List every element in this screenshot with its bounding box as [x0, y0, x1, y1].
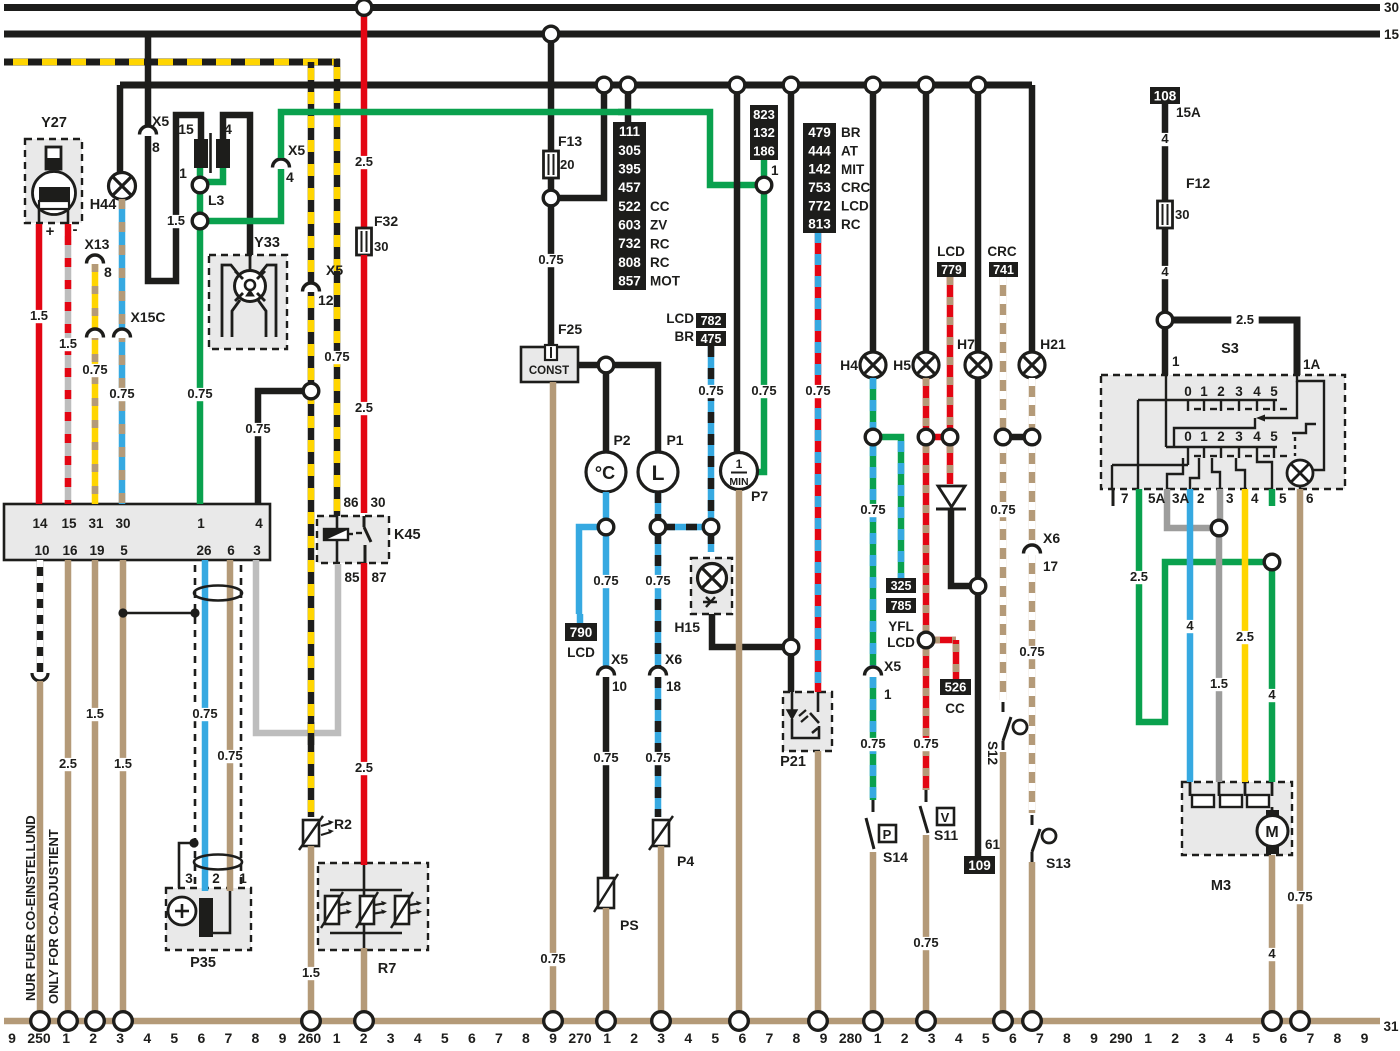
svg-text:X6: X6 [665, 651, 682, 667]
svg-text:9: 9 [820, 1030, 828, 1046]
svg-text:P21: P21 [780, 754, 806, 770]
svg-text:4: 4 [1251, 491, 1259, 506]
svg-text:BR: BR [841, 125, 861, 140]
svg-text:+: + [46, 223, 55, 240]
svg-text:1: 1 [736, 457, 743, 471]
svg-text:0.75: 0.75 [538, 252, 563, 267]
svg-text:85: 85 [344, 570, 360, 585]
svg-text:3: 3 [1235, 429, 1243, 444]
svg-text:X6: X6 [1043, 530, 1060, 546]
svg-text:0.75: 0.75 [1019, 644, 1044, 659]
svg-text:8: 8 [152, 139, 160, 155]
svg-text:0.75: 0.75 [860, 736, 885, 751]
svg-text:4: 4 [955, 1030, 963, 1046]
svg-text:2.5: 2.5 [1236, 629, 1254, 644]
svg-text:0.75: 0.75 [324, 349, 349, 364]
svg-text:R2: R2 [334, 816, 352, 832]
svg-text:4: 4 [1253, 384, 1261, 399]
svg-text:L3: L3 [208, 192, 225, 208]
svg-text:4: 4 [1161, 131, 1169, 146]
svg-text:813: 813 [808, 217, 831, 232]
svg-text:1: 1 [1200, 384, 1208, 399]
svg-text:5: 5 [982, 1030, 990, 1046]
svg-text:H21: H21 [1040, 336, 1066, 352]
svg-text:2: 2 [89, 1030, 97, 1046]
svg-text:MIT: MIT [841, 162, 865, 177]
svg-text:R7: R7 [378, 961, 397, 977]
svg-text:0: 0 [1184, 429, 1192, 444]
svg-text:RC: RC [650, 236, 670, 251]
svg-text:30: 30 [115, 516, 130, 531]
svg-text:F32: F32 [374, 213, 398, 229]
svg-text:808: 808 [618, 255, 641, 270]
svg-text:1: 1 [333, 1030, 341, 1046]
svg-text:395: 395 [618, 162, 641, 177]
svg-text:1: 1 [1172, 354, 1180, 369]
svg-text:7: 7 [766, 1030, 774, 1046]
svg-text:3A: 3A [1172, 491, 1190, 506]
svg-text:4: 4 [1225, 1030, 1233, 1046]
svg-text:9: 9 [8, 1030, 16, 1046]
svg-text:0.75: 0.75 [192, 706, 217, 721]
svg-text:5: 5 [1252, 1030, 1260, 1046]
svg-text:X5: X5 [326, 262, 343, 278]
svg-text:790: 790 [570, 625, 593, 640]
svg-text:4: 4 [1268, 687, 1276, 702]
svg-text:X13: X13 [85, 236, 110, 252]
svg-text:1: 1 [884, 687, 892, 702]
svg-text:RC: RC [841, 217, 861, 232]
svg-text:2.5: 2.5 [1236, 312, 1254, 327]
svg-text:15A: 15A [1176, 105, 1201, 120]
svg-text:31: 31 [88, 516, 104, 531]
svg-text:AT: AT [841, 144, 859, 159]
svg-text:0.75: 0.75 [593, 750, 618, 765]
svg-text:0.75: 0.75 [217, 748, 242, 763]
svg-text:Y33: Y33 [254, 235, 280, 251]
svg-text:6: 6 [227, 543, 235, 558]
svg-text:S13: S13 [1046, 855, 1071, 871]
svg-text:3: 3 [185, 871, 193, 886]
svg-text:0.75: 0.75 [751, 383, 776, 398]
svg-text:LCD: LCD [887, 635, 915, 650]
svg-text:15: 15 [61, 516, 77, 531]
svg-text:6: 6 [1279, 1030, 1287, 1046]
svg-text:0.75: 0.75 [645, 573, 670, 588]
svg-text:6: 6 [468, 1030, 476, 1046]
svg-text:26: 26 [196, 543, 212, 558]
svg-text:111: 111 [619, 124, 641, 139]
svg-text:603: 603 [618, 218, 641, 233]
svg-text:0.75: 0.75 [913, 736, 938, 751]
svg-text:CRC: CRC [987, 244, 1016, 259]
svg-text:CONST: CONST [529, 365, 569, 377]
svg-text:P1: P1 [666, 432, 683, 448]
svg-text:15: 15 [178, 121, 194, 137]
svg-text:M3: M3 [1211, 878, 1231, 894]
svg-text:19: 19 [89, 543, 104, 558]
svg-text:2.5: 2.5 [355, 760, 373, 775]
svg-text:YFL: YFL [888, 619, 914, 634]
svg-text:0.75: 0.75 [187, 386, 212, 401]
svg-text:1: 1 [874, 1030, 882, 1046]
svg-text:270: 270 [568, 1030, 592, 1046]
svg-text:5: 5 [1270, 384, 1278, 399]
svg-text:-: - [73, 221, 78, 238]
svg-text:2.5: 2.5 [355, 154, 373, 169]
svg-text:2: 2 [1197, 491, 1205, 506]
svg-text:X5: X5 [152, 113, 169, 129]
svg-text:0.75: 0.75 [593, 573, 618, 588]
svg-text:4: 4 [255, 516, 263, 531]
svg-text:857: 857 [618, 274, 641, 289]
svg-text:475: 475 [701, 332, 722, 346]
svg-text:1.5: 1.5 [86, 706, 104, 721]
svg-text:0.75: 0.75 [860, 502, 885, 517]
svg-text:5: 5 [1279, 491, 1287, 506]
svg-text:823: 823 [753, 107, 775, 122]
svg-text:0.75: 0.75 [109, 386, 134, 401]
svg-text:F25: F25 [558, 321, 582, 337]
svg-text:30: 30 [1384, 0, 1399, 15]
svg-text:3: 3 [1198, 1030, 1206, 1046]
svg-text:10: 10 [34, 543, 49, 558]
svg-text:5: 5 [441, 1030, 449, 1046]
svg-text:10: 10 [612, 679, 627, 694]
svg-text:2.5: 2.5 [1130, 569, 1148, 584]
svg-text:4: 4 [1268, 946, 1276, 961]
svg-text:6: 6 [197, 1030, 205, 1046]
svg-text:PS: PS [620, 917, 639, 933]
svg-text:0.75: 0.75 [698, 383, 723, 398]
svg-text:H44: H44 [90, 197, 117, 213]
svg-text:4: 4 [414, 1030, 422, 1046]
svg-text:2: 2 [630, 1030, 638, 1046]
svg-text:4: 4 [143, 1030, 151, 1046]
svg-text:1: 1 [603, 1030, 611, 1046]
svg-text:MOT: MOT [650, 274, 681, 289]
svg-text:S12: S12 [985, 741, 1000, 765]
svg-text:30: 30 [370, 495, 385, 510]
svg-text:MIN: MIN [729, 476, 748, 488]
svg-text:ONLY FOR CO-ADJUSTIENT: ONLY FOR CO-ADJUSTIENT [46, 829, 61, 1004]
svg-text:X15C: X15C [130, 309, 165, 325]
svg-text:3: 3 [116, 1030, 124, 1046]
svg-text:0.75: 0.75 [990, 502, 1015, 517]
svg-text:1: 1 [1144, 1030, 1152, 1046]
svg-text:H15: H15 [674, 619, 700, 635]
svg-text:3: 3 [928, 1030, 936, 1046]
svg-text:1: 1 [197, 516, 205, 531]
svg-text:8: 8 [793, 1030, 801, 1046]
svg-text:5: 5 [711, 1030, 719, 1046]
svg-text:9: 9 [549, 1030, 557, 1046]
svg-text:4: 4 [1253, 429, 1261, 444]
svg-text:785: 785 [891, 599, 912, 613]
svg-text:H4: H4 [840, 357, 858, 373]
svg-text:S3: S3 [1221, 341, 1239, 357]
svg-text:0.75: 0.75 [913, 935, 938, 950]
svg-text:2: 2 [360, 1030, 368, 1046]
svg-text:2.5: 2.5 [59, 756, 77, 771]
svg-text:7: 7 [1121, 491, 1129, 506]
svg-text:87: 87 [371, 570, 386, 585]
svg-text:753: 753 [808, 180, 831, 195]
svg-text:1: 1 [239, 871, 247, 886]
svg-text:0.75: 0.75 [1287, 889, 1312, 904]
svg-text:1A: 1A [1303, 357, 1321, 372]
svg-text:0: 0 [1184, 384, 1192, 399]
svg-text:132: 132 [753, 125, 775, 140]
svg-text:Y27: Y27 [41, 115, 67, 131]
svg-text:0.75: 0.75 [82, 362, 107, 377]
svg-text:0.75: 0.75 [245, 421, 270, 436]
svg-text:RC: RC [650, 255, 670, 270]
svg-text:526: 526 [945, 680, 967, 695]
svg-text:20: 20 [560, 157, 574, 172]
svg-text:8: 8 [1334, 1030, 1342, 1046]
svg-text:4: 4 [684, 1030, 692, 1046]
svg-text:8: 8 [104, 264, 112, 280]
svg-text:2: 2 [1217, 429, 1225, 444]
svg-text:CRC: CRC [841, 180, 870, 195]
svg-text:109: 109 [968, 858, 991, 873]
svg-text:1.5: 1.5 [114, 756, 132, 771]
svg-text:7: 7 [225, 1030, 233, 1046]
svg-text:8: 8 [1063, 1030, 1071, 1046]
svg-text:2: 2 [212, 871, 220, 886]
svg-text:4: 4 [1186, 618, 1194, 633]
svg-text:250: 250 [27, 1030, 51, 1046]
svg-text:2: 2 [1217, 384, 1225, 399]
svg-text:9: 9 [1090, 1030, 1098, 1046]
svg-text:30: 30 [1175, 207, 1189, 222]
svg-text:772: 772 [808, 198, 831, 213]
svg-text:479: 479 [808, 125, 831, 140]
svg-text:5: 5 [170, 1030, 178, 1046]
svg-text:CC: CC [650, 199, 670, 214]
svg-text:14: 14 [32, 516, 48, 531]
svg-text:12: 12 [318, 292, 334, 308]
svg-text:6: 6 [1009, 1030, 1017, 1046]
svg-text:LCD: LCD [937, 244, 965, 259]
svg-text:7: 7 [1307, 1030, 1315, 1046]
svg-text:2: 2 [1171, 1030, 1179, 1046]
svg-text:108: 108 [1154, 88, 1177, 103]
svg-text:15: 15 [1384, 27, 1400, 42]
svg-text:732: 732 [618, 236, 641, 251]
svg-text:P35: P35 [190, 955, 216, 971]
svg-text:K45: K45 [394, 527, 421, 543]
svg-text:X5: X5 [288, 142, 305, 158]
svg-text:5: 5 [120, 543, 128, 558]
svg-text:61: 61 [985, 837, 1001, 852]
svg-text:S11: S11 [934, 827, 958, 843]
svg-text:1: 1 [1200, 429, 1208, 444]
svg-text:CC: CC [945, 701, 965, 716]
svg-text:P4: P4 [677, 853, 694, 869]
svg-text:6: 6 [738, 1030, 746, 1046]
svg-text:L: L [652, 462, 665, 485]
svg-text:741: 741 [993, 263, 1014, 277]
svg-text:18: 18 [666, 679, 682, 694]
svg-text:F13: F13 [558, 133, 582, 149]
svg-text:782: 782 [701, 314, 722, 328]
svg-text:9: 9 [279, 1030, 287, 1046]
svg-text:M: M [1265, 824, 1278, 841]
svg-text:186: 186 [753, 144, 775, 159]
svg-text:1: 1 [62, 1030, 70, 1046]
svg-text:LCD: LCD [841, 199, 869, 214]
svg-text:4: 4 [286, 169, 294, 185]
svg-text:290: 290 [1109, 1030, 1133, 1046]
svg-text:7: 7 [495, 1030, 503, 1046]
svg-text:325: 325 [891, 579, 912, 593]
svg-text:LCD: LCD [567, 645, 595, 660]
svg-text:F12: F12 [1186, 175, 1210, 191]
svg-text:5A: 5A [1148, 491, 1166, 506]
svg-text:86: 86 [343, 495, 359, 510]
svg-text:3: 3 [1226, 491, 1234, 506]
svg-text:P7: P7 [751, 488, 768, 504]
svg-text:LCD: LCD [666, 311, 694, 326]
svg-text:1: 1 [771, 163, 779, 178]
svg-text:P2: P2 [613, 432, 630, 448]
svg-text:2.5: 2.5 [355, 400, 373, 415]
svg-text:7: 7 [1036, 1030, 1044, 1046]
svg-text:S14: S14 [883, 849, 908, 865]
svg-text:142: 142 [808, 162, 831, 177]
svg-text:°C: °C [595, 463, 615, 483]
svg-text:305: 305 [618, 143, 641, 158]
svg-text:1.5: 1.5 [302, 965, 320, 980]
svg-text:31: 31 [1383, 1019, 1399, 1034]
svg-text:9: 9 [1361, 1030, 1369, 1046]
svg-text:0.75: 0.75 [645, 750, 670, 765]
svg-text:280: 280 [839, 1030, 863, 1046]
svg-text:V: V [941, 810, 950, 825]
svg-text:0.75: 0.75 [805, 383, 830, 398]
svg-text:8: 8 [522, 1030, 530, 1046]
svg-text:30: 30 [374, 239, 388, 254]
svg-text:1.5: 1.5 [30, 308, 48, 323]
svg-text:BR: BR [675, 329, 695, 344]
svg-text:260: 260 [298, 1030, 322, 1046]
svg-text:X5: X5 [884, 658, 901, 674]
svg-text:457: 457 [618, 180, 641, 195]
svg-text:X5: X5 [611, 651, 628, 667]
svg-text:522: 522 [618, 199, 641, 214]
svg-text:3: 3 [253, 543, 261, 558]
svg-text:H5: H5 [893, 357, 911, 373]
svg-text:ZV: ZV [650, 218, 667, 233]
svg-text:0.75: 0.75 [540, 951, 565, 966]
svg-text:1.5: 1.5 [1210, 676, 1228, 691]
svg-text:NUR FUER CO-EINSTELLUND: NUR FUER CO-EINSTELLUND [23, 815, 38, 1001]
svg-text:16: 16 [62, 543, 78, 558]
svg-text:444: 444 [808, 143, 831, 158]
svg-text:8: 8 [252, 1030, 260, 1046]
svg-text:1: 1 [179, 165, 187, 181]
svg-text:4: 4 [1161, 264, 1169, 279]
svg-text:4: 4 [224, 121, 232, 137]
svg-text:3: 3 [657, 1030, 665, 1046]
svg-text:17: 17 [1043, 559, 1058, 574]
svg-text:1.5: 1.5 [59, 336, 77, 351]
svg-text:1.5: 1.5 [167, 213, 185, 228]
svg-text:3: 3 [387, 1030, 395, 1046]
svg-text:6: 6 [1306, 491, 1314, 506]
svg-text:779: 779 [941, 263, 962, 277]
svg-text:3: 3 [1235, 384, 1243, 399]
svg-text:2: 2 [901, 1030, 909, 1046]
svg-text:P: P [883, 827, 892, 842]
svg-text:5: 5 [1270, 429, 1278, 444]
svg-text:H7: H7 [957, 336, 975, 352]
